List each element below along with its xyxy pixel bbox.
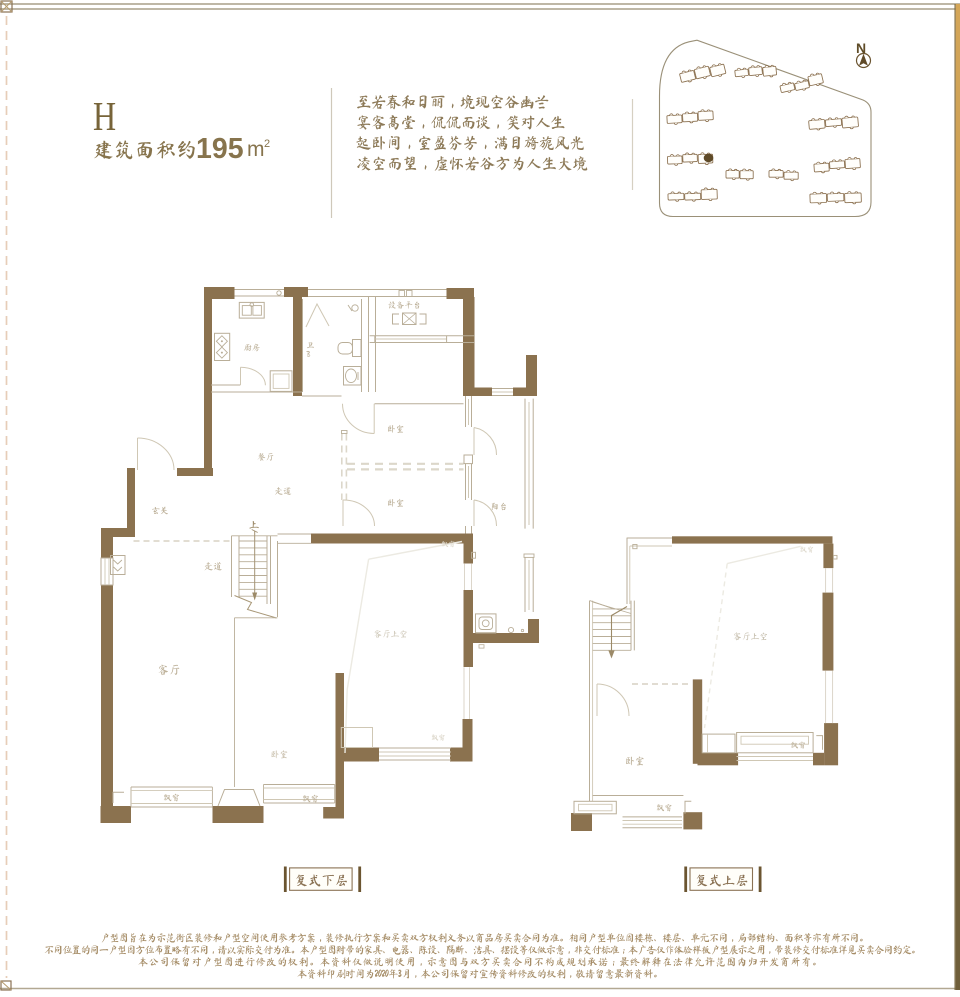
svg-text:195: 195 <box>196 133 244 165</box>
svg-text:2: 2 <box>264 138 270 150</box>
svg-text:H: H <box>93 93 116 139</box>
svg-text:m: m <box>247 138 265 161</box>
